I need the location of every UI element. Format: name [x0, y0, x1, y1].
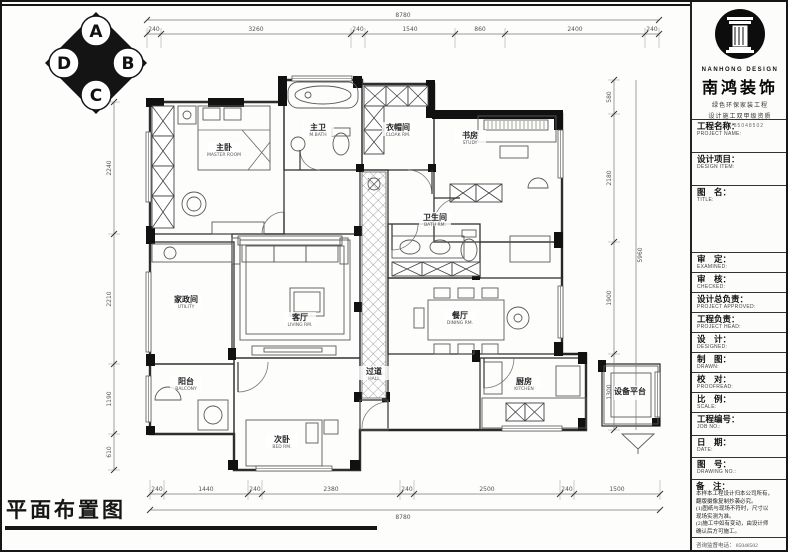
furniture: [332, 128, 350, 136]
note-line: 翻版摄像复制抄袭必究。: [696, 499, 786, 507]
field-label-en: PROOFREAD:: [697, 384, 788, 390]
room-label-en-utility-room: UTILITY: [178, 304, 195, 310]
field-label-en: CHECKED:: [697, 284, 788, 290]
title-block-row: 日 期：DATE:: [692, 436, 788, 458]
field-label-en: DRAWN:: [697, 364, 788, 370]
field-label-cn: 工程负责：: [697, 315, 788, 324]
door-swing-arc: [300, 150, 320, 170]
fixture-circle: [305, 92, 311, 98]
company-tagline-2: 设计施工双甲级资质: [692, 111, 788, 120]
dimension-value: 240: [151, 486, 163, 493]
furniture: [360, 400, 388, 430]
field-label-cn: 比 例：: [697, 395, 788, 404]
room-label-en-master-bedroom: MASTER ROOM: [207, 152, 241, 158]
wall-pier: [554, 342, 563, 356]
room-label-master-bath: 主卫: [310, 122, 326, 132]
field-label-cn: 制 图：: [697, 355, 788, 364]
room-label-en-dining-room: DINING RM.: [447, 320, 473, 326]
furniture: [510, 236, 550, 262]
furniture: [482, 288, 498, 298]
furniture-line: [248, 142, 270, 170]
title-block-notes: 备 注： 本样本工程设计归本公司所有，翻版摄像复制抄袭必究。(1)图纸与现场不符…: [692, 480, 788, 538]
field-label-cn: 校 对：: [697, 375, 788, 384]
hallway-floor-hatch: [362, 172, 386, 398]
title-block-rows: 工程名称：PROJECT NAME:设计项目：DESIGN ITEM:图 名：T…: [692, 120, 788, 480]
fixture-circle: [507, 307, 529, 329]
room-label-hallway: 过道: [366, 366, 382, 376]
furniture: [242, 245, 274, 262]
room-wall: [150, 364, 234, 434]
room-label-dining-room: 餐厅: [451, 310, 468, 320]
dimension-value: 1900: [606, 290, 613, 305]
field-label-en: DESIGNED:: [697, 344, 788, 350]
wall-pier: [652, 418, 660, 426]
note-line: 现场实测为准。: [696, 514, 786, 522]
room-label-study: 书房: [462, 130, 478, 140]
dimension-value: 1190: [106, 391, 113, 406]
fixture-circle: [204, 406, 222, 424]
title-block-row: 工程编号：JOB NO.:: [692, 413, 788, 436]
room-label-en-kitchen: KITCHEN: [514, 386, 534, 392]
dimension-value: 1540: [402, 26, 417, 33]
field-label-en: PROJECT APPROVED:: [697, 304, 788, 310]
title-block-row: 设 计：DESIGNED:: [692, 333, 788, 353]
room-label-en-balcony: BALCONY: [175, 386, 197, 392]
room-label-en-bathroom: BATH RM.: [424, 222, 446, 228]
furniture: [482, 344, 498, 354]
fixture-path: [622, 434, 654, 454]
title-block-row: 制 图：DRAWN:: [692, 353, 788, 373]
note-line: 本样本工程设计归本公司所有，: [696, 491, 786, 499]
furniture: [458, 344, 474, 354]
field-label-en: TITLE:: [697, 197, 788, 203]
furniture: [306, 423, 318, 443]
note-line: (2)施工中如有变动，由设计师: [696, 521, 786, 529]
field-label-cn: 审 定：: [697, 255, 788, 264]
dimension-value: 240: [148, 26, 160, 33]
dimension-value: 240: [249, 486, 261, 493]
wall-pier: [578, 352, 587, 364]
dimension-value: 5960: [637, 247, 644, 262]
dimension-value: 2400: [567, 26, 582, 33]
dimension-value: 240: [561, 486, 573, 493]
title-block-row: 审 定：EXAMINED:: [692, 253, 788, 273]
dimension-value: 2210: [106, 291, 113, 306]
dimension-value: 2180: [606, 170, 613, 185]
room-label-master-bedroom: 主卧: [216, 142, 232, 152]
company-name-cn: 南鸿装饰: [692, 74, 788, 98]
field-label-cn: 日 期：: [697, 438, 788, 447]
fixture-circle: [182, 192, 206, 216]
furniture: [306, 245, 338, 262]
wall-pier: [146, 426, 155, 435]
dimension-value: 240: [401, 486, 413, 493]
wall-pier: [554, 232, 563, 248]
room-label-en-hallway: HALL: [368, 376, 380, 382]
dimension-value: 1500: [609, 486, 624, 493]
fixture-circle: [514, 314, 522, 322]
furniture: [324, 420, 338, 434]
field-label-en: SCALE:: [697, 404, 788, 410]
field-label-en: DESIGN ITEM:: [697, 164, 788, 170]
title-block-row: 工程负责：PROJECT HEAD:: [692, 313, 788, 333]
furniture: [294, 292, 320, 312]
fixture-circle: [183, 111, 191, 119]
company-name-en: NANHONG DESIGN: [692, 67, 788, 73]
door-swing-arc: [408, 170, 432, 194]
furniture: [500, 146, 528, 158]
fixture-ellipse: [295, 86, 351, 104]
supervision-phone: 咨询监督电话： 85048502: [692, 538, 788, 549]
note-line: (1)图纸与现场不符时，尺寸以: [696, 506, 786, 514]
furniture: [484, 362, 502, 394]
dimension-value: 8780: [395, 12, 410, 19]
fixture-circle: [291, 137, 305, 151]
wall-pier: [228, 460, 238, 470]
field-label-en: EXAMINED:: [697, 264, 788, 270]
field-label-en: JOB NO.:: [697, 424, 788, 430]
title-block-row: 审 核：CHECKED:: [692, 273, 788, 293]
room-label-cloak-room: 衣帽间: [386, 122, 410, 132]
room-label-utility-room: 家政间: [174, 294, 198, 304]
dimension-value: 3260: [248, 26, 263, 33]
door-swing-arc: [362, 402, 388, 428]
fixture-circle: [164, 247, 176, 259]
furniture: [434, 344, 450, 354]
dimension-value: 240: [646, 26, 658, 33]
company-logo-column-icon: [714, 8, 766, 60]
fixture-ellipse: [400, 240, 420, 254]
wall-pier: [350, 460, 360, 470]
furniture: [274, 245, 306, 262]
wall-pier: [146, 354, 155, 366]
dimension-value: 1440: [198, 486, 213, 493]
furniture: [252, 346, 336, 355]
room-label-en-living-room: LIVING RM.: [288, 322, 313, 328]
title-block-row: 比 例：SCALE:: [692, 393, 788, 413]
company-header: NANHONG DESIGN 南鸿装饰 绿色环保家装工程 设计施工双甲级资质 0…: [692, 2, 788, 120]
wall-pier: [432, 110, 562, 119]
furniture: [238, 236, 342, 245]
fixture-path: [528, 178, 548, 188]
wall-pier: [354, 392, 362, 402]
title-block: NANHONG DESIGN 南鸿装饰 绿色环保家装工程 设计施工双甲级资质 0…: [690, 2, 788, 550]
dimension-value: 240: [352, 26, 364, 33]
room-label-living-room: 客厅: [291, 312, 308, 322]
title-block-row: 图 名：TITLE:: [692, 186, 788, 253]
dimension-value: 610: [106, 446, 113, 458]
wall-pier: [356, 164, 364, 172]
note-line: 确认后方可施工。: [696, 529, 786, 537]
wall-pier: [146, 226, 155, 244]
room-label-en-study: STUDY: [463, 140, 478, 146]
field-label-en: DATE:: [697, 447, 788, 453]
title-block-row: 设计项目：DESIGN ITEM:: [692, 153, 788, 186]
furniture: [556, 366, 580, 396]
dimension-value: 2380: [323, 486, 338, 493]
company-tagline-1: 绿色环保家装工程: [692, 100, 788, 109]
furniture: [178, 106, 196, 124]
room-label-balcony: 阳台: [178, 376, 194, 386]
title-block-row: 图 号：DRAWING NO.:: [692, 458, 788, 480]
room-label-en-master-bath: M.BATH: [309, 132, 326, 138]
dimension-value: 1300: [606, 384, 613, 399]
wall-pier: [554, 110, 563, 130]
floor-plan-drawing: 2403260240154086024002408780240144024023…: [2, 2, 692, 552]
door-swing-arc: [392, 224, 418, 250]
dimension-value: 8780: [395, 514, 410, 521]
field-label-cn: 图 名：: [697, 188, 788, 197]
title-block-row: 校 对：PROOFREAD:: [692, 373, 788, 393]
room-wall: [234, 358, 360, 470]
field-label-cn: 审 核：: [697, 275, 788, 284]
wall-pier: [228, 348, 236, 360]
title-block-row: 设计总负责：PROJECT APPROVED:: [692, 293, 788, 313]
dimension-value: 2240: [106, 160, 113, 175]
dimension-value: 2500: [479, 486, 494, 493]
drawing-title: 平面布置图: [6, 494, 126, 524]
field-label-cn: 设计总负责：: [697, 295, 788, 304]
field-label-en: PROJECT HEAD:: [697, 324, 788, 330]
drawing-title-underline: [5, 526, 377, 530]
notes-label: 备 注：: [696, 482, 786, 491]
room-label-bathroom: 卫生间: [423, 212, 447, 222]
field-label-cn: 图 号：: [697, 460, 788, 469]
room-wall: [434, 114, 562, 242]
room-label-en-second-bedroom: BED RM.: [272, 444, 291, 450]
wall-pier: [354, 302, 362, 312]
door-swing-arc: [262, 212, 284, 234]
dimension-value: 580: [606, 91, 613, 103]
room-label-kitchen: 厨房: [516, 376, 532, 386]
furniture: [203, 108, 220, 120]
furniture: [434, 288, 450, 298]
furniture: [198, 106, 270, 170]
room-wall: [232, 234, 360, 358]
furniture: [392, 236, 464, 258]
furniture: [264, 348, 322, 352]
furniture-line: [242, 130, 270, 162]
wall-pier: [353, 76, 362, 88]
furniture: [458, 288, 474, 298]
field-label-cn: 设 计：: [697, 335, 788, 344]
furniture: [414, 308, 424, 328]
furniture: [198, 400, 228, 430]
floor-plan-sheet: A B C D 24032602401540860240024087802401…: [0, 0, 788, 552]
field-label-cn: 设计项目：: [697, 155, 788, 164]
furniture: [212, 222, 264, 234]
wall-pier: [278, 76, 287, 106]
room-label-second-bedroom: 次卧: [274, 434, 290, 444]
wall-pier: [354, 226, 362, 236]
door-swing-arc: [238, 362, 268, 392]
field-label-en: PROJECT NAME:: [697, 131, 788, 137]
fixture-circle: [187, 197, 201, 211]
room-label-equip-platform: 设备平台: [614, 386, 646, 396]
wall-pier: [472, 350, 480, 362]
room-label-en-cloak-room: CLOAK RM.: [386, 132, 411, 138]
field-label-cn: 工程编号：: [697, 415, 788, 424]
furniture: [224, 108, 241, 120]
dimension-value: 860: [474, 26, 486, 33]
field-label-en: DRAWING NO.:: [697, 469, 788, 475]
